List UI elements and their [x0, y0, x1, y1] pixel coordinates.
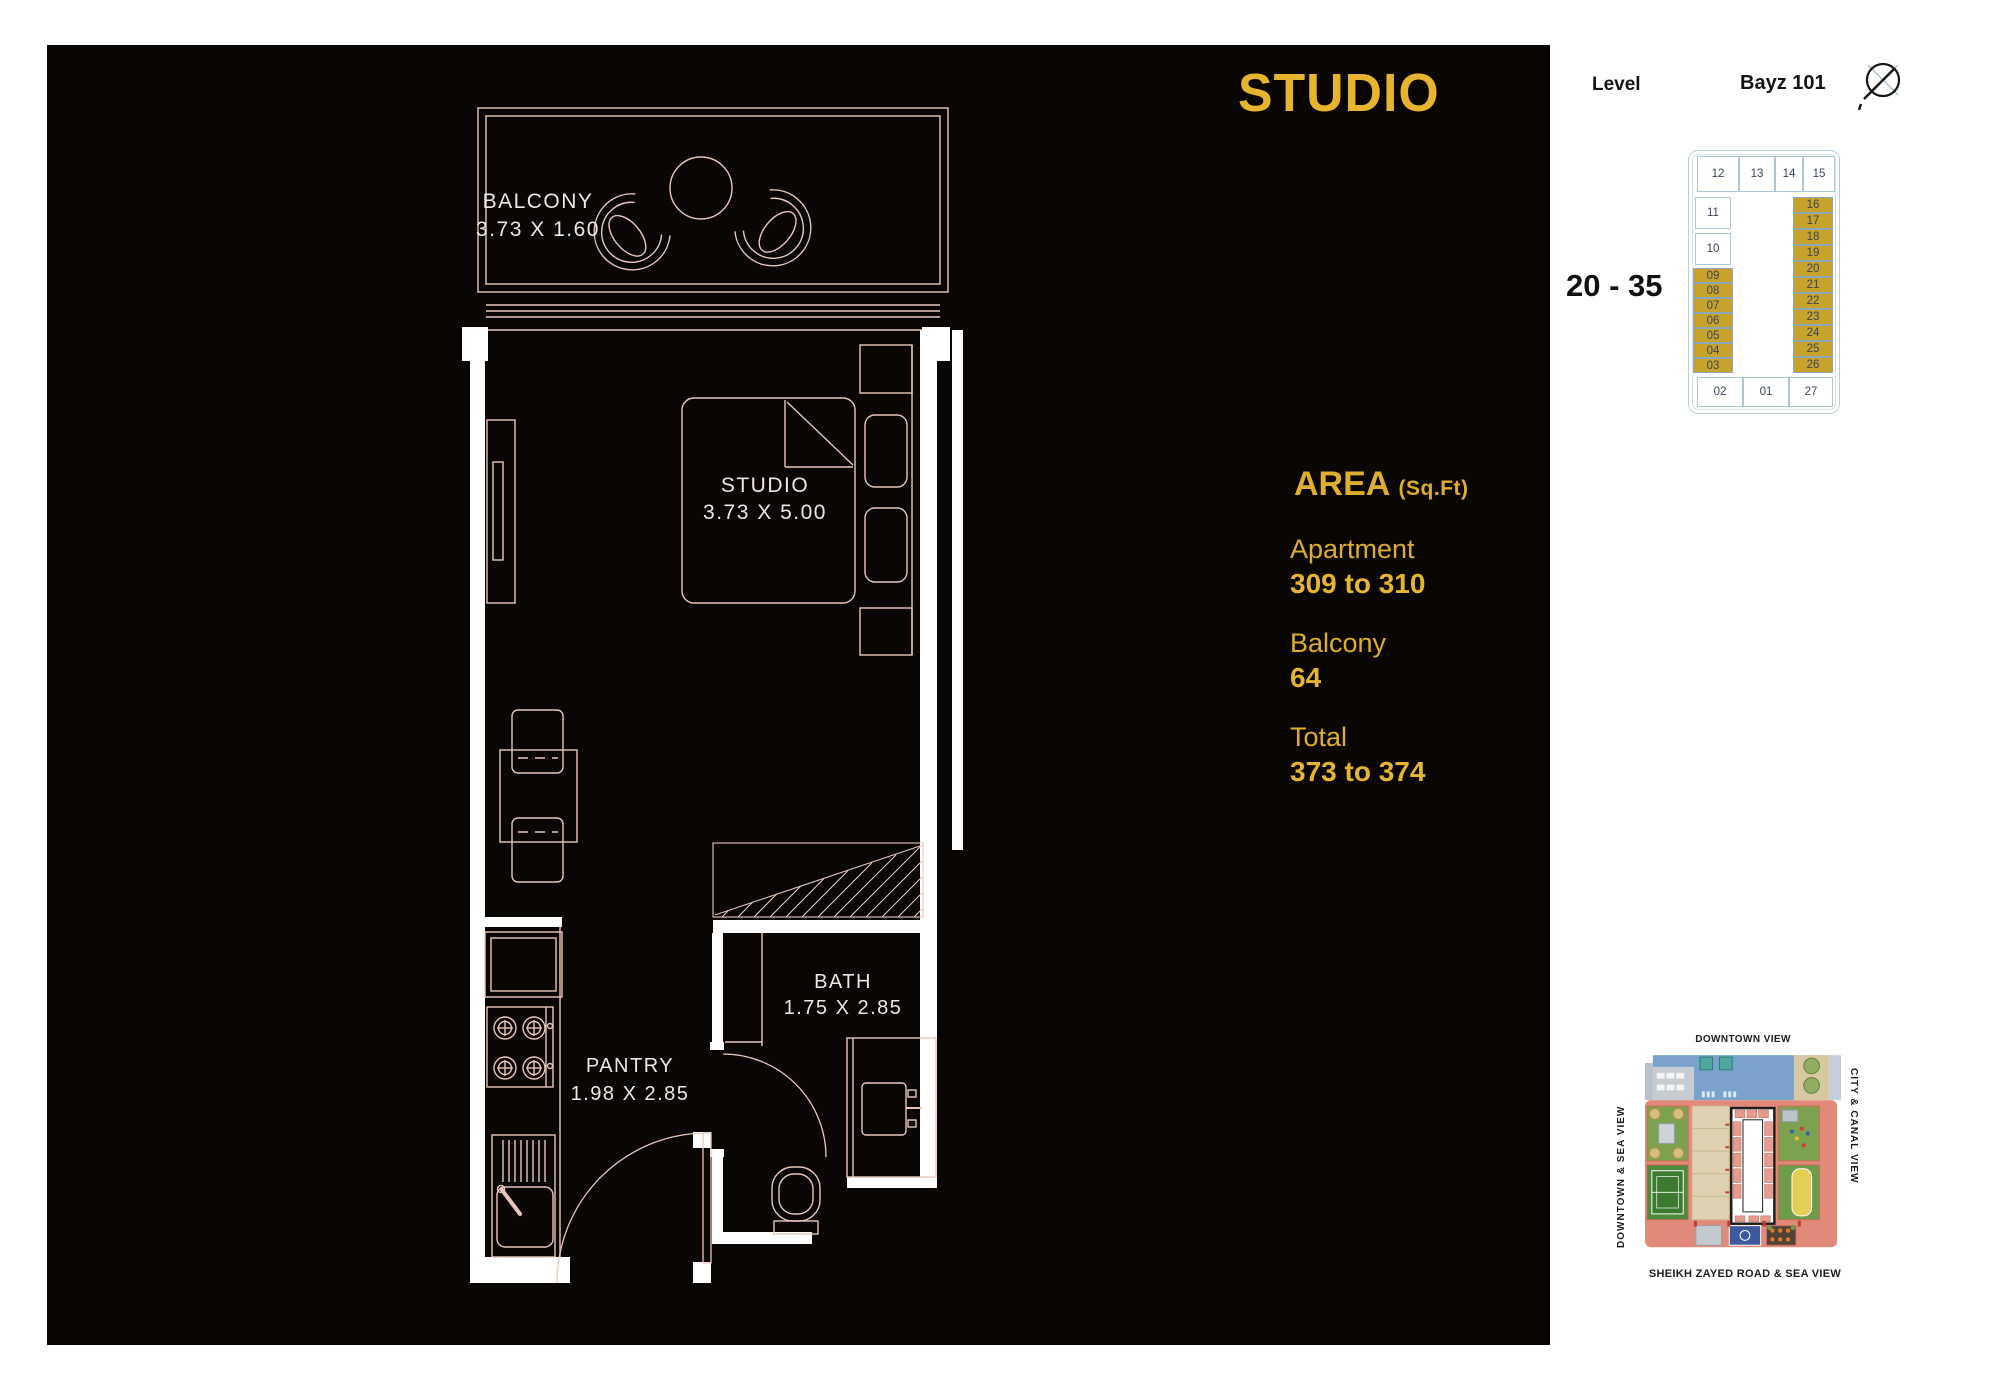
vanity-sink	[862, 1083, 906, 1135]
room-labels: BALCONY 3.73 X 1.60 STUDIO 3.73 X 5.00 B…	[476, 190, 902, 1105]
room-label-pantry: PANTRY	[586, 1055, 674, 1077]
tennis-court	[1647, 1165, 1688, 1220]
dining-set	[500, 710, 577, 882]
bed-pillow	[865, 415, 907, 487]
bed-pillow	[865, 508, 907, 582]
area-row-total: Total 373 to 374	[1290, 721, 1469, 789]
apartment-value: 309 to 310	[1290, 567, 1469, 601]
compass-icon	[1856, 50, 1912, 114]
bed-group	[682, 345, 912, 655]
balcony-value: 64	[1290, 661, 1469, 695]
room-dims-studio: 3.73 X 5.00	[703, 501, 827, 524]
balcony-label: Balcony	[1290, 627, 1469, 659]
stack-unit-08: 08	[1693, 283, 1733, 298]
balcony-table	[670, 157, 732, 219]
area-row-balcony: Balcony 64	[1290, 627, 1469, 695]
map-label-downtown-view: DOWNTOWN VIEW	[1645, 1034, 1841, 1045]
kitchen-counter	[485, 932, 562, 997]
entry-door-arc	[557, 1133, 707, 1283]
tower-footprint	[1731, 1108, 1774, 1224]
stack-unit-15: 15	[1803, 156, 1835, 192]
entry-door-leaf	[703, 1133, 711, 1263]
bath-door-arc	[723, 1054, 826, 1157]
stack-unit-03: 03	[1693, 358, 1733, 373]
total-label: Total	[1290, 721, 1469, 753]
stack-unit-21: 21	[1793, 277, 1833, 293]
map-label-sheikh-zayed: SHEIKH ZAYED ROAD & SEA VIEW	[1600, 1268, 1890, 1280]
area-row-apartment: Apartment 309 to 310	[1290, 533, 1469, 601]
brochure-page: STUDIO Level Bayz 101 20 - 35 1213141511…	[0, 0, 2000, 1381]
page-title: STUDIO	[1238, 62, 1440, 124]
area-heading-unit: (Sq.Ft)	[1399, 477, 1469, 500]
stack-unit-27: 27	[1789, 377, 1833, 407]
kitchen	[485, 927, 562, 1257]
stack-unit-24: 24	[1793, 325, 1833, 341]
stack-unit-16: 16	[1793, 197, 1833, 213]
floor-plan: BALCONY 3.73 X 1.60 STUDIO 3.73 X 5.00 B…	[460, 90, 970, 1315]
map-label-city-canal-view: CITY & CANAL VIEW	[1848, 1068, 1859, 1248]
walls	[462, 327, 963, 1283]
stack-unit-04: 04	[1693, 343, 1733, 358]
playground	[1778, 1106, 1819, 1161]
room-dims-balcony: 3.73 X 1.60	[476, 218, 600, 241]
stack-plan-diagram: 1213141511100908070605040316171819202122…	[1688, 150, 1840, 414]
drainboard	[503, 1140, 545, 1182]
stack-unit-09: 09	[1693, 268, 1733, 283]
balcony-chair-right	[728, 182, 826, 282]
stack-unit-10: 10	[1695, 233, 1731, 265]
room-label-balcony: BALCONY	[483, 190, 594, 213]
stack-unit-06: 06	[1693, 313, 1733, 328]
running-track	[1778, 1165, 1819, 1220]
levels-range: 20 - 35	[1566, 268, 1663, 304]
map-label-downtown-sea-view: DOWNTOWN & SEA VIEW	[1616, 1068, 1627, 1248]
room-dims-bath: 1.75 X 2.85	[784, 997, 903, 1019]
stack-unit-13: 13	[1739, 156, 1775, 192]
pool-area	[1645, 1055, 1841, 1100]
dining-chair	[512, 710, 563, 773]
stack-unit-01: 01	[1743, 377, 1789, 407]
faucet	[502, 1190, 520, 1214]
stack-unit-07: 07	[1693, 298, 1733, 313]
area-heading: AREA (Sq.Ft)	[1294, 466, 1469, 507]
stack-unit-25: 25	[1793, 341, 1833, 357]
room-dims-pantry: 1.98 X 2.85	[571, 1083, 690, 1105]
room-label-studio: STUDIO	[721, 474, 809, 497]
stack-unit-12: 12	[1697, 156, 1739, 192]
dining-chair	[512, 818, 563, 882]
annex-building	[1692, 1106, 1729, 1220]
nightstand	[860, 345, 912, 393]
building-name: Bayz 101	[1740, 72, 1826, 95]
apartment-label: Apartment	[1290, 533, 1469, 565]
stack-unit-05: 05	[1693, 328, 1733, 343]
stack-unit-23: 23	[1793, 309, 1833, 325]
shaft-hatch	[713, 843, 923, 917]
stack-unit-26: 26	[1793, 357, 1833, 373]
level-label: Level	[1592, 74, 1641, 96]
stack-unit-18: 18	[1793, 229, 1833, 245]
area-summary: AREA (Sq.Ft) Apartment 309 to 310 Balcon…	[1290, 466, 1469, 789]
stack-unit-02: 02	[1697, 377, 1743, 407]
room-label-bath: BATH	[814, 971, 872, 993]
stack-unit-22: 22	[1793, 293, 1833, 309]
stack-unit-20: 20	[1793, 261, 1833, 277]
stack-unit-19: 19	[1793, 245, 1833, 261]
garden-tables-block	[1647, 1106, 1688, 1161]
total-value: 373 to 374	[1290, 755, 1469, 789]
stack-unit-11: 11	[1695, 197, 1731, 229]
stack-unit-14: 14	[1775, 156, 1803, 192]
wardrobe	[487, 420, 515, 603]
nightstand	[860, 608, 912, 655]
stove-burners	[494, 1017, 545, 1079]
balcony-furniture	[579, 157, 827, 285]
area-heading-text: AREA	[1294, 465, 1389, 503]
stack-unit-17: 17	[1793, 213, 1833, 229]
site-map-graphic	[1645, 1052, 1841, 1266]
